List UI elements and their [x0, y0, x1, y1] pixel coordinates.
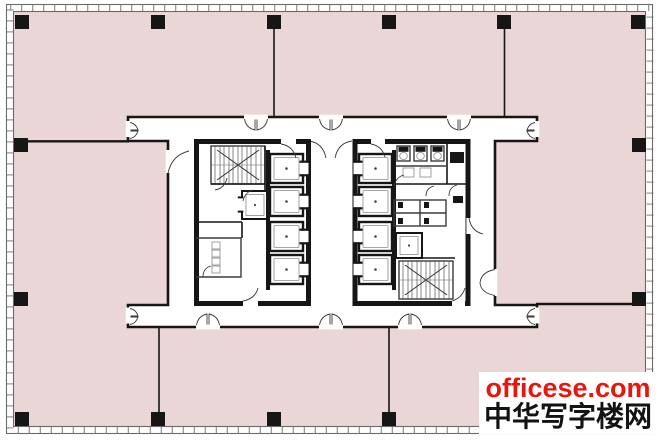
core-left	[196, 138, 309, 307]
stair-left-core	[211, 146, 265, 184]
floor-plan-page: officese.com 中华写字楼网	[0, 0, 660, 440]
service-room	[396, 233, 422, 258]
watermark-site-url: officese.com	[485, 375, 650, 402]
core-right	[354, 138, 484, 307]
watermark: officese.com 中华写字楼网	[479, 372, 657, 434]
stair-right-core	[399, 261, 453, 299]
core-zone	[128, 117, 537, 327]
duct-shaft	[450, 152, 464, 163]
duct-shaft	[453, 196, 463, 203]
watermark-site-name: 中华写字楼网	[484, 403, 652, 431]
